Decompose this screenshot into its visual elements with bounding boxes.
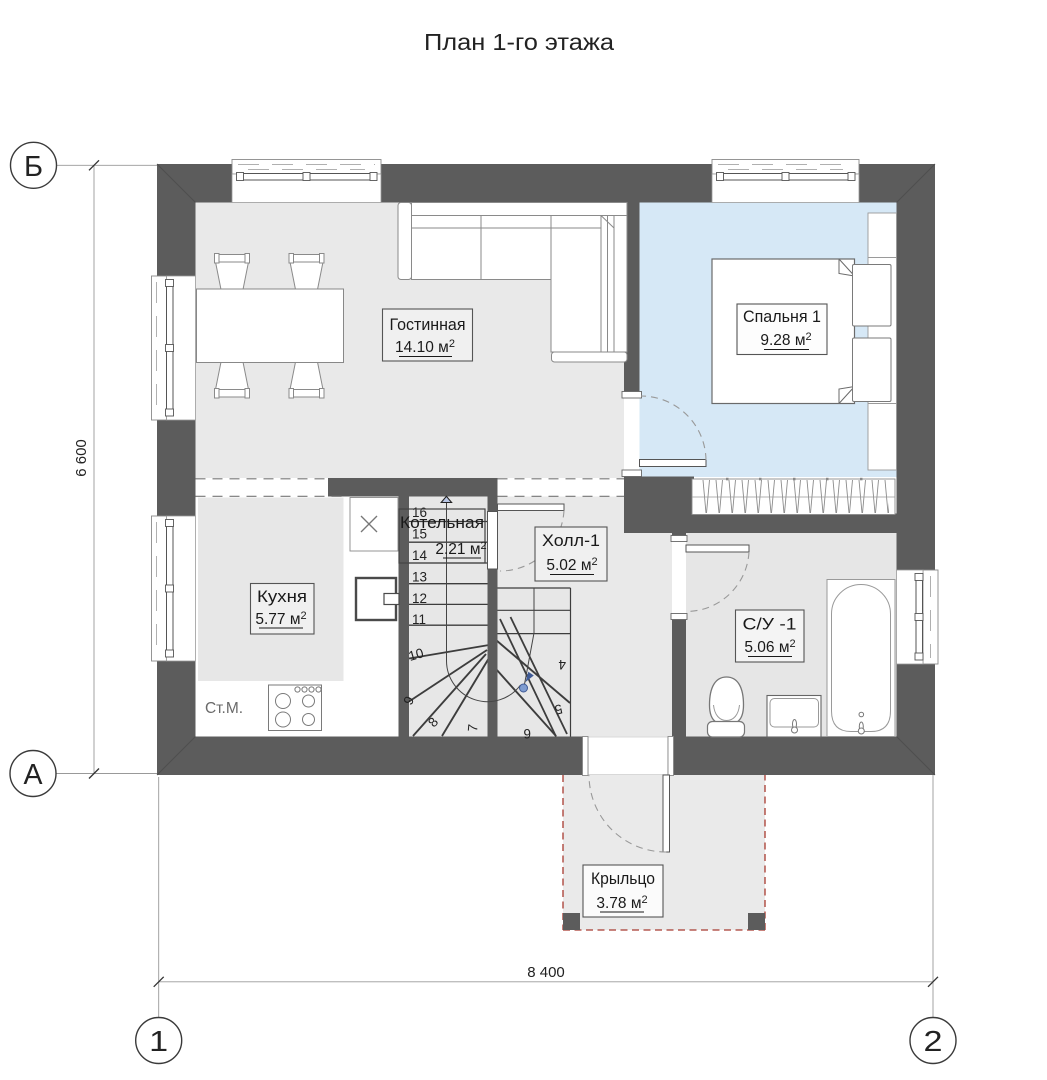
svg-text:5.77 м2: 5.77 м2 [255,610,306,628]
svg-text:Б: Б [24,151,43,183]
svg-text:9.28 м2: 9.28 м2 [760,331,811,349]
svg-text:6: 6 [523,726,531,741]
svg-text:Гостинная: Гостинная [390,315,466,334]
svg-text:А: А [24,759,44,791]
svg-text:14.10 м2: 14.10 м2 [395,338,455,356]
svg-text:Крыльцо: Крыльцо [591,869,655,888]
svg-text:2.21 м2: 2.21 м2 [435,540,486,558]
svg-text:1: 1 [149,1026,168,1058]
svg-text:11: 11 [412,612,426,627]
svg-text:3.78 м2: 3.78 м2 [596,894,647,912]
svg-text:Спальня 1: Спальня 1 [743,307,821,326]
svg-text:План 1-го этажа: План 1-го этажа [424,29,615,55]
svg-text:4: 4 [558,657,566,672]
svg-text:Кухня: Кухня [257,587,307,606]
svg-text:С/У -1: С/У -1 [743,615,797,634]
svg-text:13: 13 [412,570,427,585]
svg-text:7: 7 [465,723,481,732]
svg-text:5.02 м2: 5.02 м2 [546,556,597,574]
svg-text:14: 14 [412,548,428,563]
svg-text:Холл-1: Холл-1 [542,531,600,550]
svg-text:Котельная: Котельная [400,514,484,532]
svg-text:Ст.М.: Ст.М. [205,700,243,717]
svg-text:2: 2 [924,1026,943,1058]
svg-text:5.06 м2: 5.06 м2 [744,638,795,656]
svg-text:8 400: 8 400 [527,964,565,981]
svg-text:6 600: 6 600 [73,439,90,477]
svg-text:12: 12 [412,591,427,606]
